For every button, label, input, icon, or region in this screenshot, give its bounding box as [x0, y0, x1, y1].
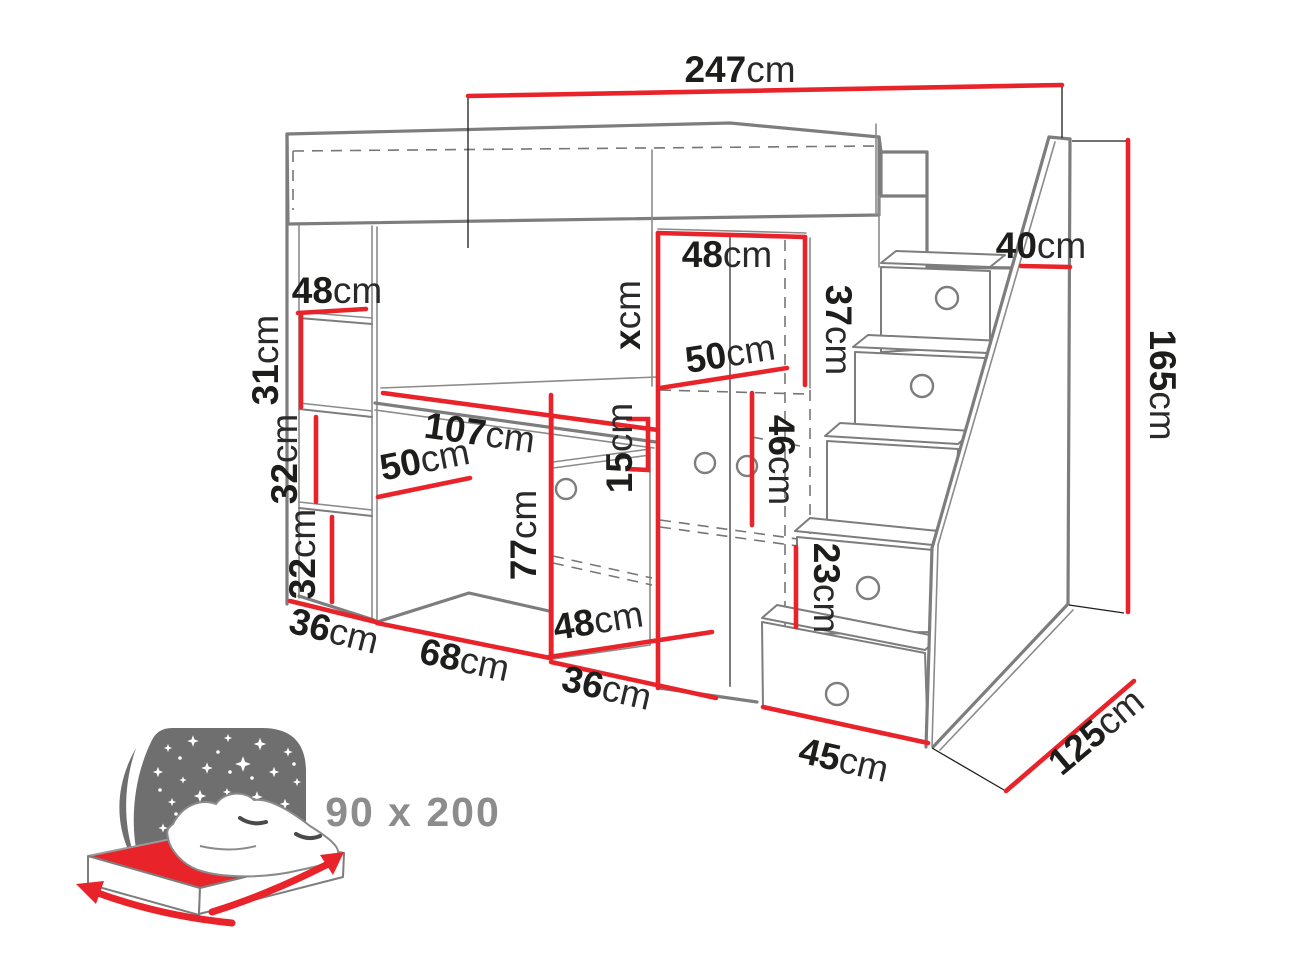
- dim-shelf-gap-bottom: 32cm: [282, 509, 323, 599]
- dim-desk-niche-width: 68cm: [416, 630, 513, 689]
- drawer-knob-icon: [826, 683, 848, 705]
- dim-shelf-gap-middle: 32cm: [264, 414, 305, 504]
- dim-wardrobe-inner-height: 46cm: [761, 415, 802, 505]
- dim-stair-top-depth: 40cm: [996, 225, 1086, 266]
- furniture-dimension-diagram: 247cm 48cm 31cm 32cm 32cm 36cm 107cm 50c…: [0, 0, 1305, 979]
- width-arrowhead-icon: [76, 881, 104, 904]
- dim-side-depth: 36cm: [285, 600, 383, 662]
- wardrobe-knob-icon: [695, 453, 715, 473]
- dim-stair-rise: 23cm: [806, 543, 847, 633]
- dim-total-height: 165cm: [1142, 329, 1183, 440]
- dim-top-shelf-width: 48cm: [292, 270, 382, 311]
- dim-stair-width: 45cm: [795, 730, 892, 790]
- drawer-knob-icon: [911, 375, 933, 397]
- cabinet-knob-icon: [556, 479, 576, 499]
- dim-cabinet-depth: 36cm: [558, 658, 655, 718]
- mattress-size-label: 90 x 200: [325, 789, 501, 835]
- drawer-knob-icon: [936, 287, 958, 309]
- dim-cabinet-height: 77cm: [503, 490, 544, 580]
- drawer-knob-icon: [857, 577, 879, 599]
- dim-total-width: 247cm: [684, 49, 795, 90]
- dim-wardrobe-width: 48cm: [682, 234, 772, 275]
- dim-wardrobe-top-height: 37cm: [818, 285, 859, 375]
- mattress-size-icon: 90 x 200: [76, 728, 501, 923]
- dim-total-depth: 125cm: [1040, 680, 1151, 783]
- dim-wardrobe-height: xcm: [607, 280, 648, 350]
- dim-cabinet-width: 48cm: [550, 593, 646, 648]
- dim-shelf-height: 15cm: [599, 403, 640, 493]
- diagram-page: 247cm 48cm 31cm 32cm 32cm 36cm 107cm 50c…: [0, 0, 1305, 979]
- dim-shelf-gap-top: 31cm: [245, 315, 286, 405]
